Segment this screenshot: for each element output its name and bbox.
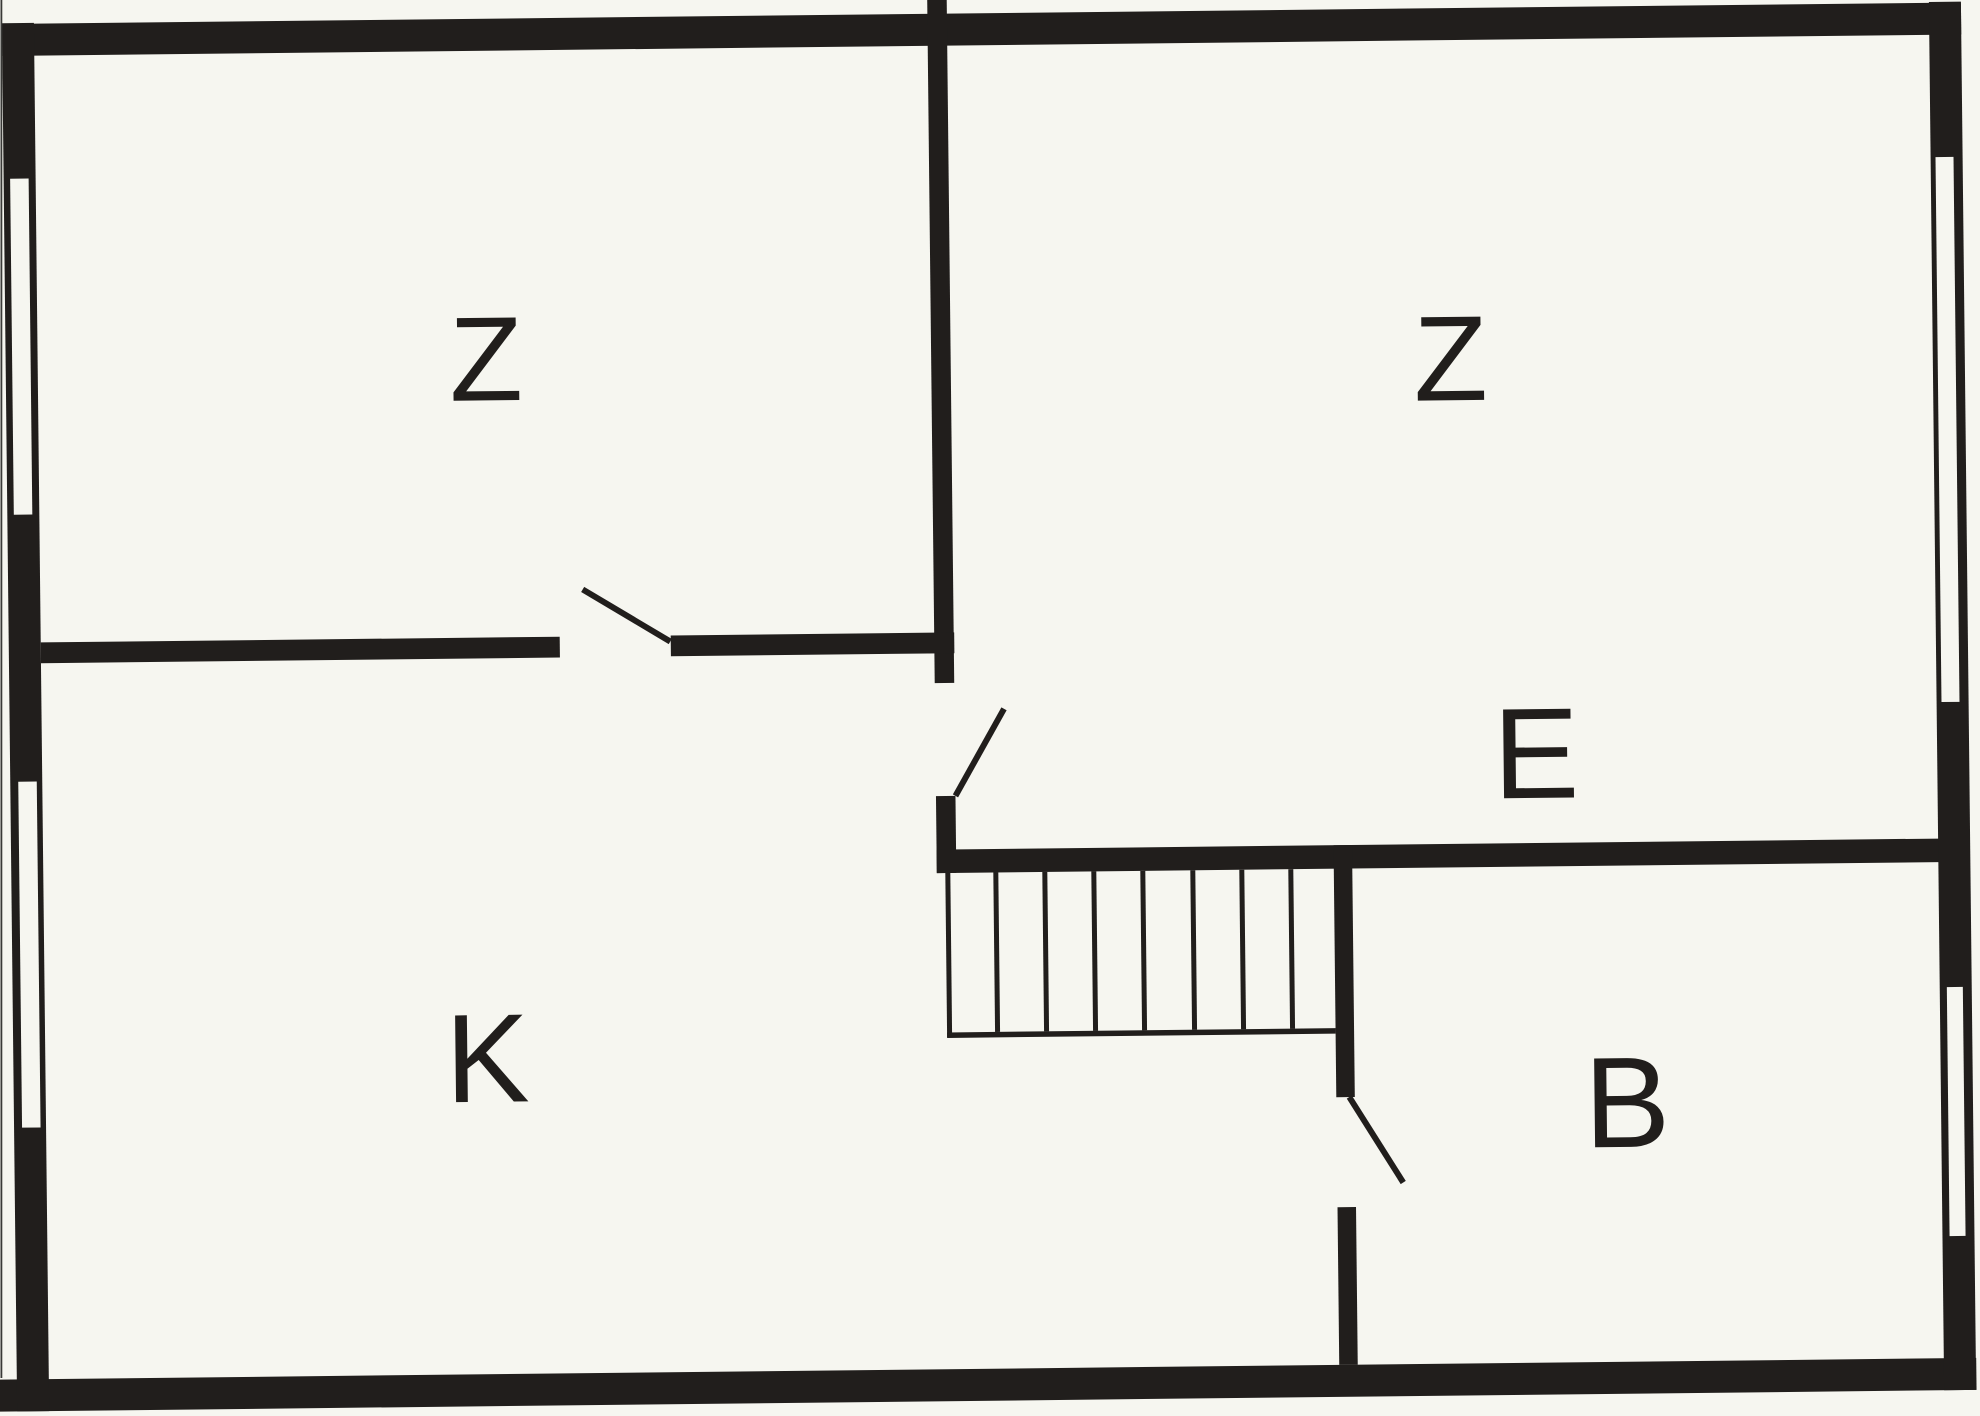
- svg-text:E: E: [1492, 681, 1580, 826]
- svg-text:K: K: [445, 987, 531, 1129]
- svg-text:B: B: [1583, 1030, 1671, 1175]
- svg-text:Z: Z: [1413, 290, 1488, 427]
- svg-text:Z: Z: [449, 292, 524, 427]
